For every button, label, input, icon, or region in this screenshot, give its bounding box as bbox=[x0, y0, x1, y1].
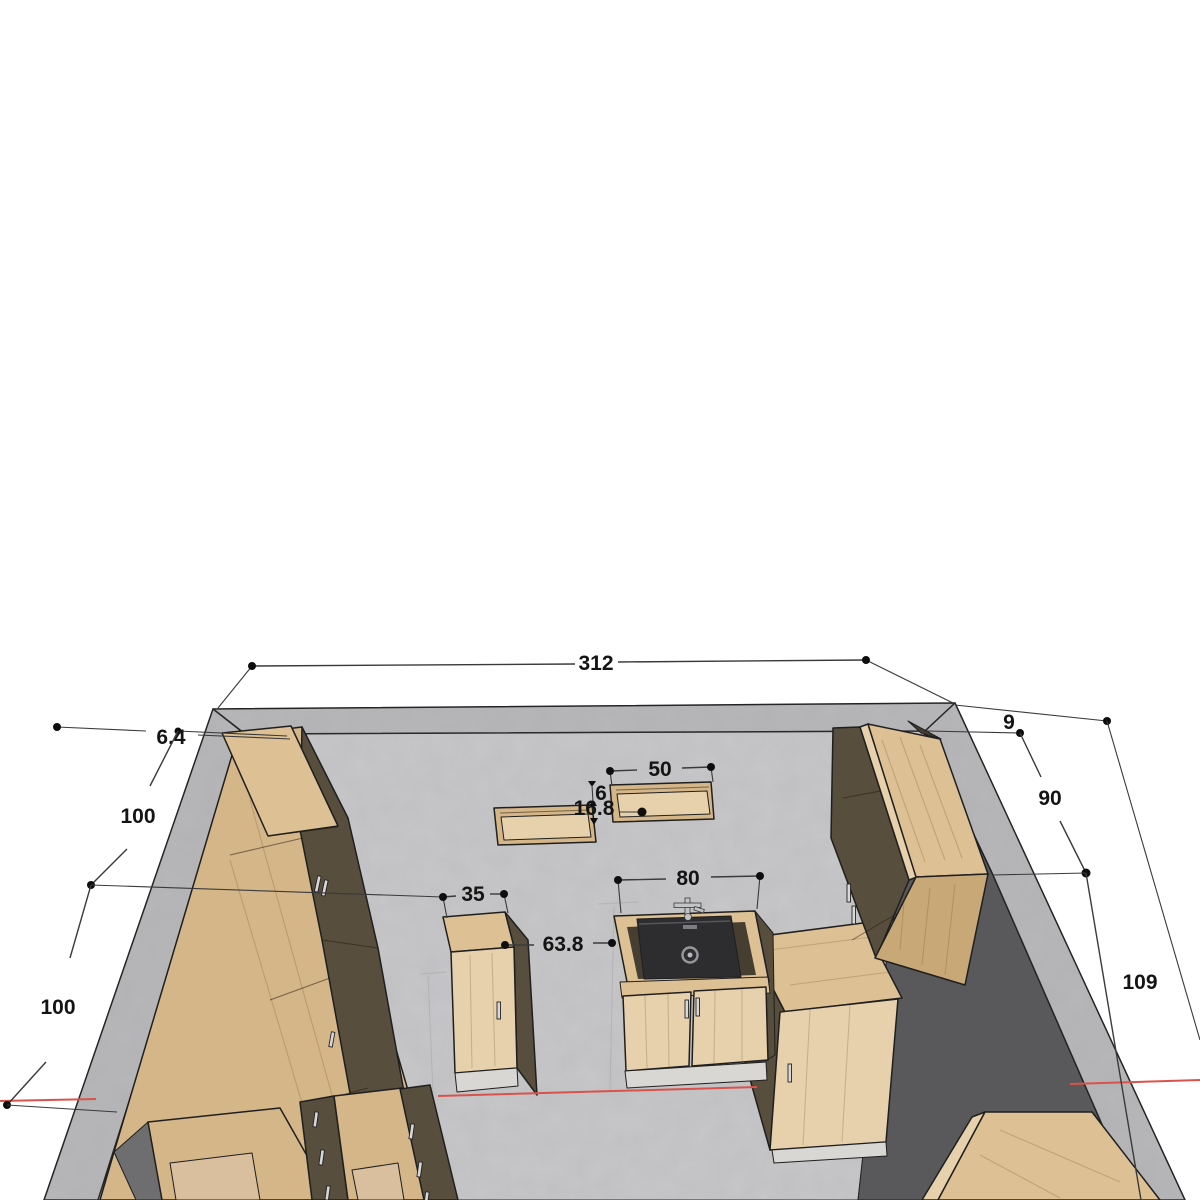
small-cabinet-handle bbox=[497, 1002, 501, 1019]
dim-right-run-2-label: 109 bbox=[1122, 971, 1157, 994]
dim-shelf-width-label: 50 bbox=[648, 758, 671, 781]
pantry-handle-2 bbox=[852, 906, 856, 924]
dim-back-width-label: 312 bbox=[578, 652, 613, 675]
sink-cabinet-door-left bbox=[623, 992, 691, 1071]
dim-right-run-1-label: 90 bbox=[1038, 787, 1061, 810]
dim-back-width: 312 bbox=[218, 652, 953, 708]
right-base-cabinet-handle bbox=[788, 1064, 792, 1082]
sink-cabinet bbox=[614, 898, 775, 1088]
pantry-handle-1 bbox=[847, 884, 851, 902]
dim-left-run-1-label: 100 bbox=[120, 805, 155, 828]
wall-shelf-right-interior bbox=[617, 791, 710, 817]
3d-kitchen-viewport[interactable]: 312 6.4 100 100 bbox=[0, 0, 1200, 1200]
small-cabinet-door bbox=[451, 947, 517, 1073]
sink-door-handle-left bbox=[685, 1000, 689, 1018]
corner-open-shelf-interior-2 bbox=[352, 1163, 404, 1200]
sink-door-handle-right bbox=[696, 998, 700, 1016]
dim-shelf-depth-label: 16.8 bbox=[574, 797, 615, 820]
small-cabinet-35 bbox=[443, 912, 537, 1095]
dim-right-offset-label: 9 bbox=[1003, 711, 1015, 734]
dim-left-run-2-label: 100 bbox=[40, 996, 75, 1019]
kitchen-plan-scene: 312 6.4 100 100 bbox=[0, 0, 1200, 1200]
dim-small-cabinet-label: 35 bbox=[461, 883, 485, 906]
sink-overflow bbox=[683, 925, 697, 929]
sink-cabinet-door-right bbox=[692, 987, 768, 1066]
dim-walkway-label: 63.8 bbox=[543, 933, 584, 956]
dim-sink-cabinet-label: 80 bbox=[676, 867, 699, 890]
